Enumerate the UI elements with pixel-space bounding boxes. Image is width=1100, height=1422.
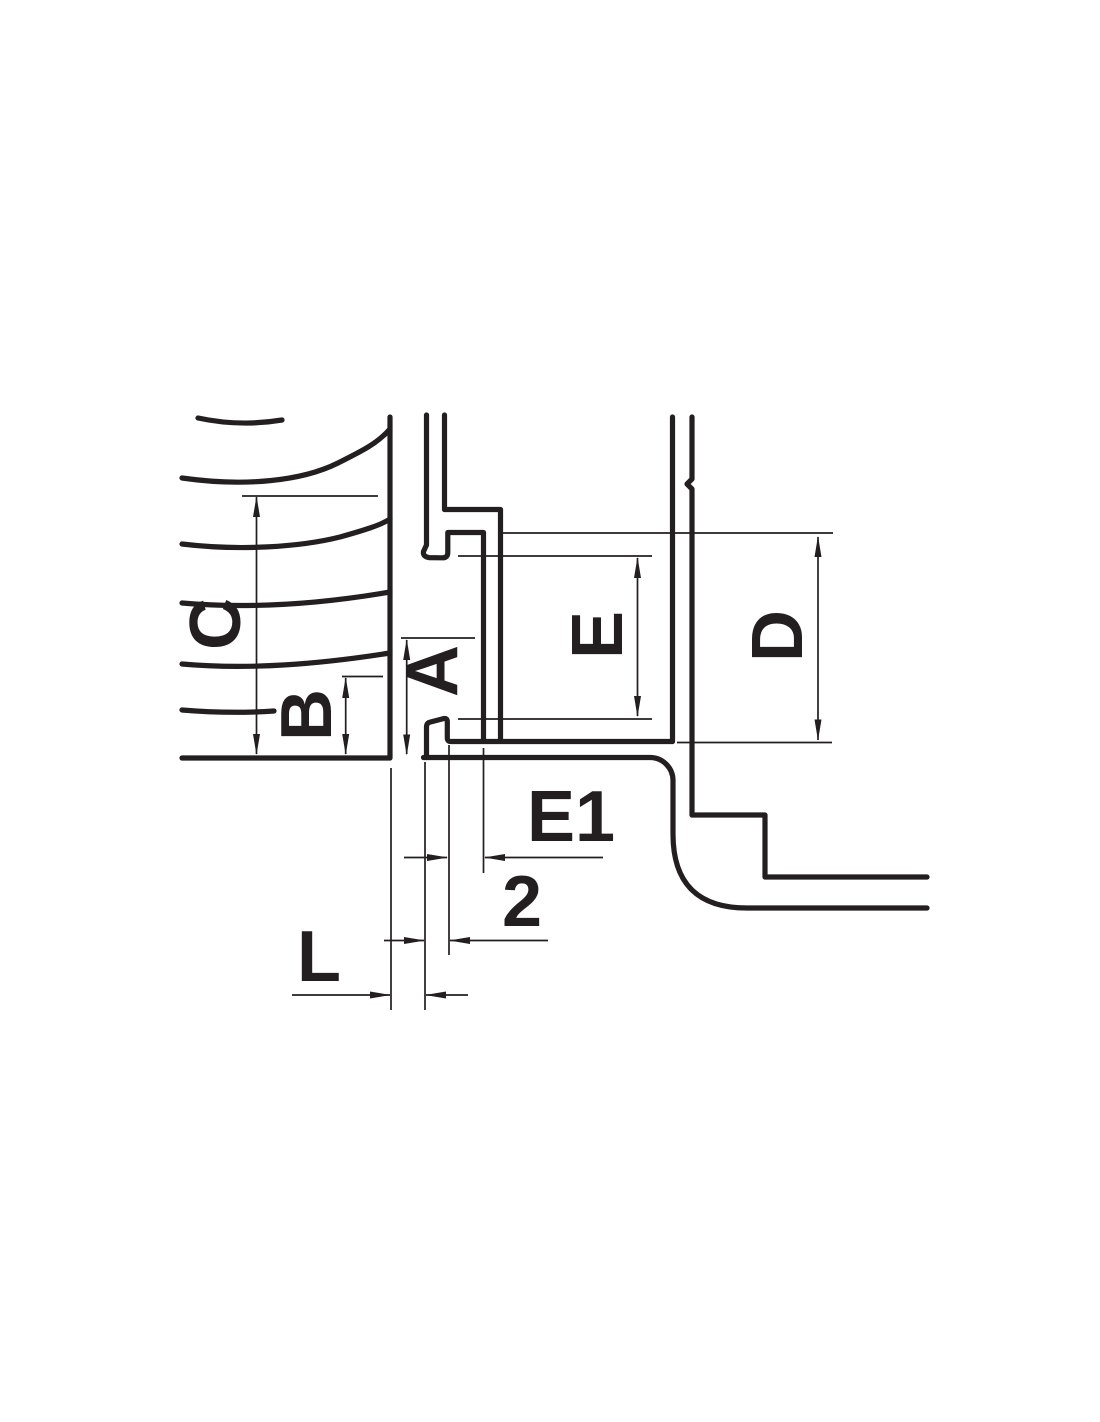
hub-curve-1	[182, 429, 390, 482]
flange-profile	[424, 758, 928, 909]
seal-section	[423, 415, 672, 758]
dim-c-arrow-up	[253, 496, 260, 517]
dim-a-arrow-down	[403, 735, 410, 756]
seal-cross-section-diagram: C B A E D E1 2 L	[0, 0, 1100, 1422]
dim-e1-arrow-right	[427, 854, 448, 861]
dim-c-arrow-down	[253, 734, 260, 755]
hub-curve-2	[182, 519, 390, 548]
dim-d-arrow-down	[815, 720, 822, 741]
dim-label-d: D	[738, 610, 818, 662]
dim-label-l: L	[297, 917, 341, 997]
dim-label-a: A	[393, 645, 473, 697]
dim-d-arrow-up	[815, 536, 822, 557]
dimension-labels: C B A E D E1 2 L	[176, 598, 818, 997]
dim-e1-arrow-left	[484, 854, 505, 861]
seal-bottom-lip-and-chamber-floor	[427, 718, 673, 757]
hub-shoulder-line	[182, 710, 274, 712]
dim-label-b: B	[267, 689, 347, 741]
technical-drawing-page: C B A E D E1 2 L	[0, 0, 1100, 1422]
hub-top-arc	[198, 418, 282, 423]
dim-e-arrow-down	[634, 696, 641, 717]
dim-e-arrow-up	[634, 557, 641, 578]
dim-label-e: E	[558, 611, 638, 659]
dim-l-arrow-left	[425, 992, 446, 999]
dim-2-arrow-left	[449, 937, 470, 944]
dim-2-arrow-right	[404, 937, 425, 944]
dim-label-c: C	[176, 598, 256, 650]
dim-label-2: 2	[502, 862, 542, 942]
dim-label-e1: E1	[527, 777, 615, 857]
dim-l-arrow-right	[370, 992, 391, 999]
hub-curve-4	[182, 653, 390, 666]
